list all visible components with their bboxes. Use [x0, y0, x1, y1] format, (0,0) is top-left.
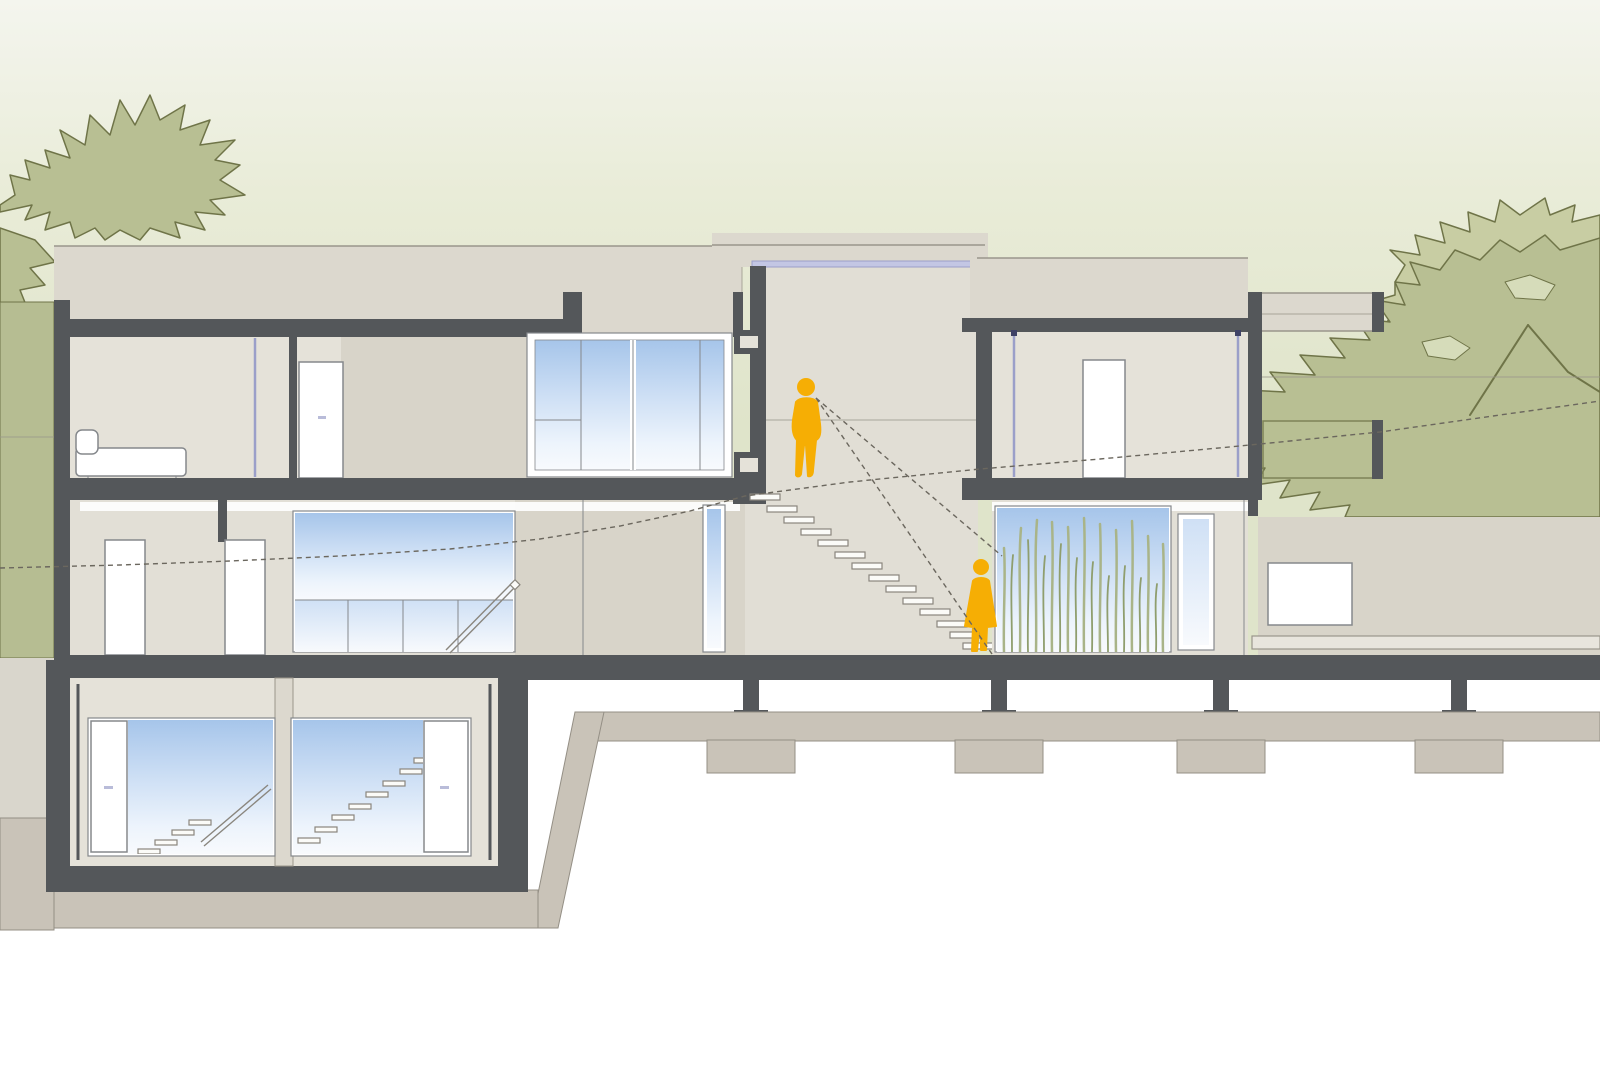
upper-window	[527, 333, 732, 477]
architectural-section-canvas: Architectural cross-section drawing of a…	[0, 0, 1600, 1067]
bed-headboard	[76, 430, 98, 454]
bw1-glass	[128, 720, 273, 854]
foundation-far-left	[0, 818, 54, 930]
canopy-end-cap	[1372, 292, 1384, 332]
foundation-band	[575, 712, 1600, 741]
footing-bump-3	[1177, 740, 1265, 773]
ground-window-lower	[295, 600, 513, 652]
narrow-pane-glass	[1183, 519, 1209, 645]
stair-tower	[712, 233, 1002, 655]
section-drawing: Architectural cross-section drawing of a…	[0, 0, 1600, 1067]
right-roof-slab	[962, 318, 1248, 332]
roof-upstand	[563, 292, 582, 337]
upper-door	[299, 362, 343, 478]
upper-partition-wall	[289, 330, 297, 478]
basement-window-1	[88, 718, 275, 856]
right-floor-slab	[962, 478, 1258, 500]
ground-ceiling-strip-left	[80, 502, 740, 511]
ground-door-2	[225, 540, 265, 655]
ground-window	[293, 511, 520, 653]
tower-joint-box-lower	[734, 452, 764, 478]
basement-divider-wall	[275, 678, 293, 866]
garden-bench	[1252, 636, 1600, 649]
footing-bump-4	[1415, 740, 1503, 773]
garden-window	[1268, 563, 1352, 625]
ground-door-1	[105, 540, 145, 655]
tower-left-jamb	[750, 266, 766, 478]
ground-partition-stub	[218, 500, 227, 542]
tower-joint-box-upper	[734, 330, 764, 354]
tower-glazed-beam	[752, 261, 980, 267]
canopy	[1262, 292, 1384, 332]
balcony-end-post	[1372, 420, 1383, 479]
left-block	[54, 246, 745, 660]
upper-door-handle-mark	[318, 416, 326, 419]
footing-bump-2	[955, 740, 1043, 773]
ground-slab	[54, 655, 1600, 680]
upper-window-glass	[535, 340, 724, 470]
bw1-door-mark	[104, 786, 113, 789]
right-upper-door	[1083, 360, 1125, 478]
earth-left-upper	[0, 658, 54, 818]
glass-line-cap-2	[1235, 330, 1241, 336]
right-parapet-band	[970, 258, 1248, 320]
reed-window	[995, 506, 1171, 652]
roof-slab-left	[54, 319, 563, 337]
narrow-window-glass	[707, 509, 721, 648]
terrain-strip-left	[0, 302, 54, 658]
woman-head	[973, 559, 989, 575]
bw2-glass	[293, 720, 423, 854]
basement	[46, 660, 528, 892]
footing-bump-1	[707, 740, 795, 773]
garden-right	[1252, 517, 1600, 655]
basement-bottom-slab	[46, 866, 528, 892]
right-outer-wall	[1248, 292, 1262, 500]
canopy-band	[1262, 293, 1372, 331]
right-narrow-pane	[1178, 514, 1214, 650]
bw2-door-mark	[440, 786, 449, 789]
glass-line-cap-1	[1011, 330, 1017, 336]
basement-right-wall	[498, 660, 528, 892]
mid-floor-slab-left	[54, 478, 745, 500]
man-head	[797, 378, 815, 396]
foundation-under-basement	[46, 890, 538, 928]
basement-window-2	[291, 718, 471, 856]
basement-left-wall	[46, 660, 70, 892]
ground-narrow-window	[703, 505, 725, 652]
upper-back-wall	[341, 337, 527, 478]
